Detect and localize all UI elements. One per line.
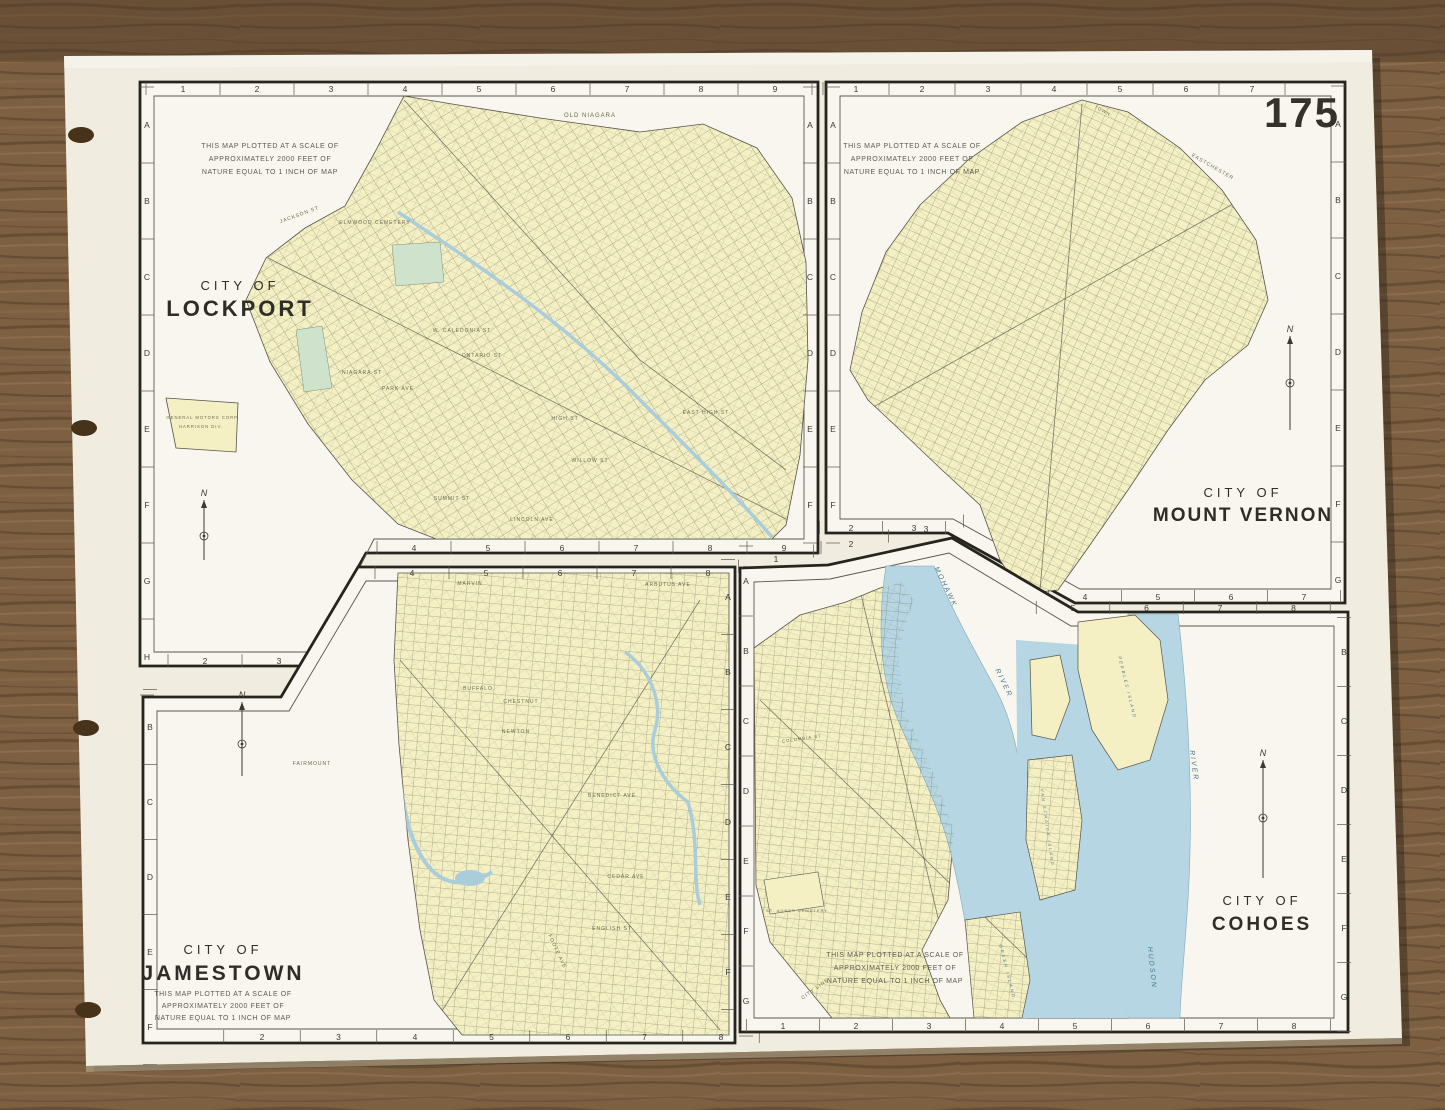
grid-ruler-label: E <box>1341 854 1347 864</box>
grid-ruler-label: C <box>830 272 836 282</box>
grid-ruler-label: E <box>830 424 836 434</box>
grid-ruler-label: 9 <box>773 84 778 94</box>
scale-note-line: NATURE EQUAL TO 1 INCH OF MAP <box>844 169 980 176</box>
map-feature-label: MARVIN <box>457 581 482 587</box>
grid-ruler-label: C <box>807 272 813 282</box>
grid-ruler-label: E <box>147 947 153 957</box>
grid-ruler-label: 8 <box>719 1032 724 1042</box>
grid-ruler-label: D <box>725 817 731 827</box>
grid-ruler-label: 7 <box>632 568 637 578</box>
grid-ruler-label: B <box>725 667 731 677</box>
grid-ruler-label: 7 <box>1250 84 1255 94</box>
grid-ruler-label: B <box>144 196 150 206</box>
map-feature-label: OLD NIAGARA <box>564 113 616 119</box>
map-feature-label: ONTARIO ST <box>462 353 502 359</box>
grid-ruler-label: D <box>1341 785 1347 795</box>
grid-ruler-label: 5 <box>1156 592 1161 602</box>
page-number: 175 <box>1264 89 1340 136</box>
grid-ruler-label: G <box>144 576 151 586</box>
lockport-title: LOCKPORT <box>166 296 313 321</box>
grid-ruler-label: A <box>807 120 813 130</box>
grid-ruler-label: 4 <box>1000 1021 1005 1031</box>
grid-ruler-label: A <box>830 120 836 130</box>
grid-ruler-label: F <box>1341 923 1346 933</box>
grid-ruler-label: B <box>807 196 813 206</box>
grid-ruler-label: G <box>1341 992 1348 1002</box>
scale-note-line: THIS MAP PLOTTED AT A SCALE OF <box>201 143 338 150</box>
scale-note-line: THIS MAP PLOTTED AT A SCALE OF <box>826 952 963 959</box>
grid-ruler-label: A <box>725 592 731 602</box>
lockport-scale-note: THIS MAP PLOTTED AT A SCALE OF APPROXIMA… <box>201 143 338 176</box>
atlas-photo: 123456789 456789 23 ABCDEFGH ABCDEF CITY… <box>0 0 1445 1110</box>
compass-north-label: N <box>1260 748 1267 758</box>
map-feature-label: BENEDICT AVE <box>588 793 636 799</box>
scale-note-line: NATURE EQUAL TO 1 INCH OF MAP <box>202 169 338 176</box>
map-feature-label: CHESTNUT <box>503 699 538 705</box>
grid-ruler-label: F <box>807 500 812 510</box>
cohoes-scale-note: THIS MAP PLOTTED AT A SCALE OF APPROXIMA… <box>826 952 963 985</box>
map-feature-label: LINCOLN AVE <box>510 517 553 523</box>
grid-ruler-label: 7 <box>625 84 630 94</box>
map-feature-label: NEWTON <box>502 729 530 735</box>
grid-ruler-label: 3 <box>336 1032 341 1042</box>
jamestown-title-prefix: CITY OF <box>183 942 262 957</box>
map-feature-label: WILLOW ST <box>571 458 608 464</box>
grid-ruler-label: 5 <box>1073 1021 1078 1031</box>
grid-ruler-label: 1 <box>854 84 859 94</box>
grid-ruler-label: G <box>1335 575 1342 585</box>
grid-ruler-label: 3 <box>329 84 334 94</box>
cohoes-title-prefix: CITY OF <box>1222 893 1301 908</box>
map-feature-label: CEDAR AVE <box>607 874 644 880</box>
grid-ruler-label: B <box>743 646 749 656</box>
grid-ruler-label: A <box>144 120 150 130</box>
grid-ruler-label: C <box>743 716 749 726</box>
grid-ruler-label: 7 <box>634 543 639 553</box>
grid-ruler-label: E <box>743 856 749 866</box>
grid-ruler-label: 5 <box>477 84 482 94</box>
map-feature-label: NIAGARA ST <box>342 370 382 376</box>
jamestown-scale-note: THIS MAP PLOTTED AT A SCALE OF APPROXIMA… <box>154 991 291 1022</box>
grid-ruler-label: F <box>743 926 748 936</box>
grid-ruler-label: 6 <box>551 84 556 94</box>
grid-ruler-label: 4 <box>410 568 415 578</box>
grid-ruler-label: 8 <box>706 568 711 578</box>
grid-ruler-label: D <box>147 872 153 882</box>
scale-note-line: NATURE EQUAL TO 1 INCH OF MAP <box>155 1015 291 1022</box>
scale-note-line: THIS MAP PLOTTED AT A SCALE OF <box>843 143 980 150</box>
grid-ruler-label: 6 <box>1144 603 1149 613</box>
grid-ruler-label: A <box>743 576 749 586</box>
map-feature-label: HIGH ST <box>551 416 578 422</box>
grid-ruler-label: D <box>1335 347 1341 357</box>
grid-ruler-label: B <box>1341 647 1347 657</box>
grid-ruler-label: 4 <box>1052 84 1057 94</box>
jamestown-title: JAMESTOWN <box>141 962 304 985</box>
compass-north-label: N <box>239 690 246 700</box>
grid-ruler-label: 3 <box>927 1021 932 1031</box>
scale-note-line: APPROXIMATELY 2000 FEET OF <box>209 156 331 163</box>
map-feature-label: ST. AGNES CEMETERY <box>766 908 828 913</box>
grid-ruler-label: 4 <box>403 84 408 94</box>
grid-ruler-label: 6 <box>1184 84 1189 94</box>
grid-ruler-label: E <box>1335 423 1341 433</box>
grid-ruler-label: 7 <box>642 1032 647 1042</box>
hole-punch <box>71 420 97 436</box>
grid-ruler-label: 5 <box>1118 84 1123 94</box>
mount-vernon-title: MOUNT VERNON <box>1153 505 1333 526</box>
grid-ruler-label: 2 <box>849 539 854 549</box>
map-feature-label: GENERAL MOTORS CORP. <box>166 415 239 420</box>
grid-ruler-label: 8 <box>1291 603 1296 613</box>
grid-ruler-label: B <box>147 722 153 732</box>
grid-ruler-label: 7 <box>1302 592 1307 602</box>
map-feature-label: PARK AVE <box>382 386 414 392</box>
grid-ruler-label: 2 <box>849 523 854 533</box>
mount-vernon-scale-note: THIS MAP PLOTTED AT A SCALE OF APPROXIMA… <box>843 143 980 176</box>
grid-ruler-label: 2 <box>203 656 208 666</box>
grid-ruler-label: D <box>144 348 150 358</box>
map-feature-label: FAIRMOUNT <box>293 761 331 767</box>
grid-ruler-label: 6 <box>1229 592 1234 602</box>
grid-ruler-label: H <box>144 652 150 662</box>
scale-note-line: THIS MAP PLOTTED AT A SCALE OF <box>154 991 291 998</box>
grid-ruler-label: 5 <box>1071 603 1076 613</box>
grid-ruler-label: C <box>1341 716 1347 726</box>
grid-ruler-label: B <box>830 196 836 206</box>
grid-ruler-label: 4 <box>413 1032 418 1042</box>
grid-ruler-label: 3 <box>277 656 282 666</box>
map-feature-label: BUFFALO <box>463 686 493 692</box>
map-feature-label: SUMMIT ST <box>434 496 470 502</box>
grid-ruler-label: 6 <box>558 568 563 578</box>
mount-vernon-title-prefix: CITY OF <box>1203 485 1282 500</box>
grid-ruler-label: 6 <box>566 1032 571 1042</box>
grid-ruler-label: 1 <box>181 84 186 94</box>
grid-ruler-label: 8 <box>708 543 713 553</box>
grid-ruler-label: 5 <box>486 543 491 553</box>
hole-punch <box>68 127 94 143</box>
grid-ruler-label: 1 <box>781 1021 786 1031</box>
scale-note-line: APPROXIMATELY 2000 FEET OF <box>851 156 973 163</box>
map-feature-label: EAST HIGH ST <box>683 410 730 416</box>
grid-ruler-label: E <box>807 424 813 434</box>
map-feature-label: HARRISON DIV. <box>179 424 223 429</box>
grid-ruler-label: E <box>725 892 731 902</box>
grid-ruler-label: 2 <box>920 84 925 94</box>
grid-ruler-label: 7 <box>1219 1021 1224 1031</box>
grid-ruler-label: F <box>147 1022 152 1032</box>
grid-ruler-label: F <box>725 967 730 977</box>
compass-north-label: N <box>201 488 208 498</box>
grid-ruler-label: 2 <box>255 84 260 94</box>
grid-ruler-label: D <box>807 348 813 358</box>
hole-punch <box>75 1002 101 1018</box>
grid-ruler-label: 8 <box>699 84 704 94</box>
grid-ruler-label: 3 <box>924 524 929 534</box>
scale-note-line: APPROXIMATELY 2000 FEET OF <box>834 965 956 972</box>
cemetery-green-patch <box>392 242 444 286</box>
grid-ruler-label: 7 <box>1218 603 1223 613</box>
grid-ruler-label: 9 <box>782 543 787 553</box>
grid-ruler-label: F <box>1335 499 1340 509</box>
grid-ruler-label: 4 <box>412 543 417 553</box>
map-feature-label: ELMWOOD CEMETERY <box>339 220 410 226</box>
compass-north-label: N <box>1287 324 1294 334</box>
grid-ruler-label: C <box>147 797 153 807</box>
scale-note-line: APPROXIMATELY 2000 FEET OF <box>162 1003 284 1010</box>
cohoes-title: COHOES <box>1212 914 1312 935</box>
grid-ruler-label: 4 <box>1083 592 1088 602</box>
hole-punch <box>73 720 99 736</box>
grid-ruler-label: E <box>144 424 150 434</box>
grid-ruler-label: 1 <box>774 554 779 564</box>
lockport-title-prefix: CITY OF <box>200 278 279 293</box>
grid-ruler-label: 3 <box>912 523 917 533</box>
grid-ruler-label: C <box>725 742 731 752</box>
grid-ruler-label: B <box>1335 195 1341 205</box>
grid-ruler-label: 8 <box>1292 1021 1297 1031</box>
grid-ruler-label: 6 <box>560 543 565 553</box>
grid-ruler-label: 3 <box>986 84 991 94</box>
grid-ruler-label: 2 <box>260 1032 265 1042</box>
scale-note-line: NATURE EQUAL TO 1 INCH OF MAP <box>827 978 963 985</box>
grid-ruler-label: C <box>1335 271 1341 281</box>
grid-ruler-label: G <box>743 996 750 1006</box>
grid-ruler-label: D <box>743 786 749 796</box>
grid-ruler-label: 2 <box>854 1021 859 1031</box>
grid-ruler-label: 5 <box>489 1032 494 1042</box>
grid-ruler-label: F <box>144 500 149 510</box>
map-feature-label: ARBUTUS AVE <box>645 582 691 588</box>
grid-ruler-label: 6 <box>1146 1021 1151 1031</box>
grid-ruler-label: D <box>830 348 836 358</box>
grid-ruler-label: C <box>144 272 150 282</box>
grid-ruler-label: 5 <box>484 568 489 578</box>
grid-ruler-label: F <box>830 500 835 510</box>
map-feature-label: W. CALEDONIA ST <box>433 328 492 334</box>
map-feature-label: ENGLISH ST <box>592 926 632 932</box>
